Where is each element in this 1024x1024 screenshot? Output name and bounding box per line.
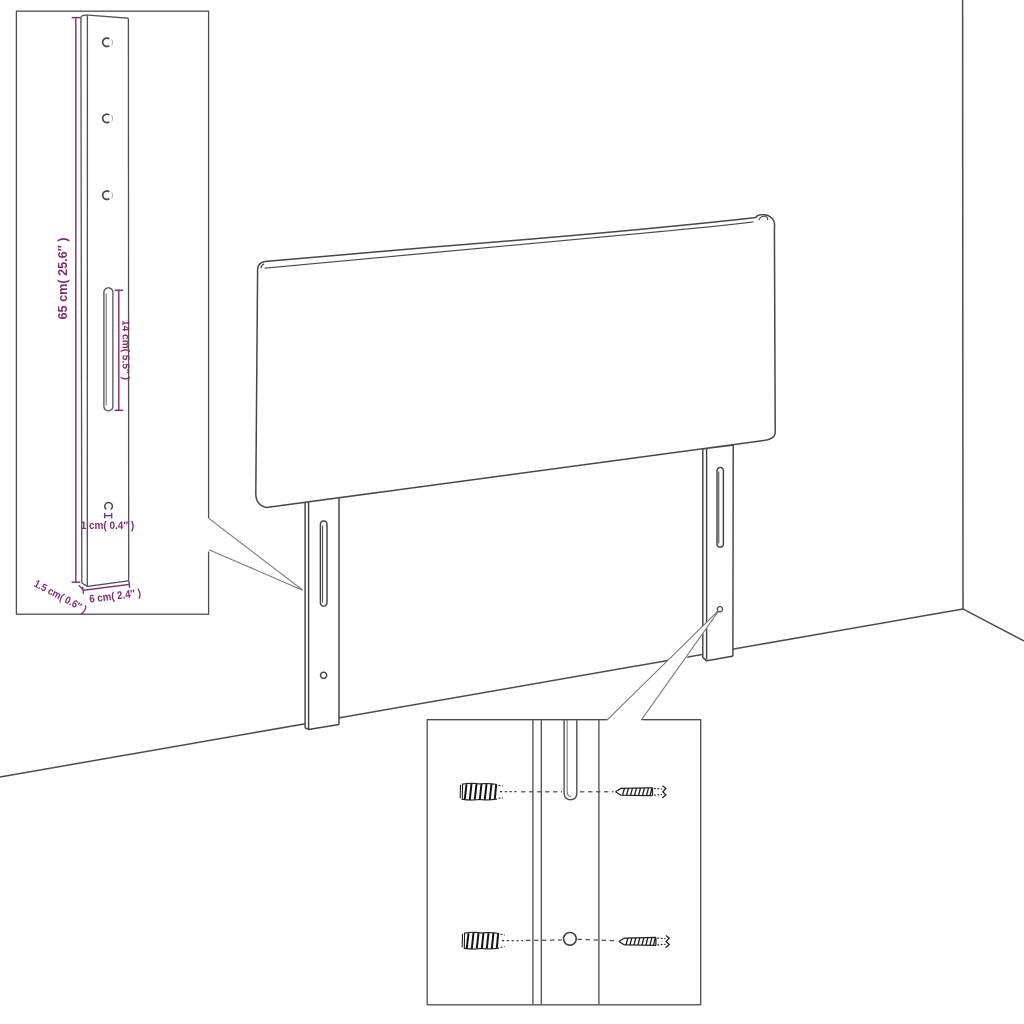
svg-text:65 cm( 25.6″ ): 65 cm( 25.6″ ) bbox=[55, 238, 70, 320]
svg-text:14 cm( 5.5″ ): 14 cm( 5.5″ ) bbox=[119, 320, 131, 380]
svg-text:1 cm( 0.4″ ): 1 cm( 0.4″ ) bbox=[81, 520, 135, 532]
